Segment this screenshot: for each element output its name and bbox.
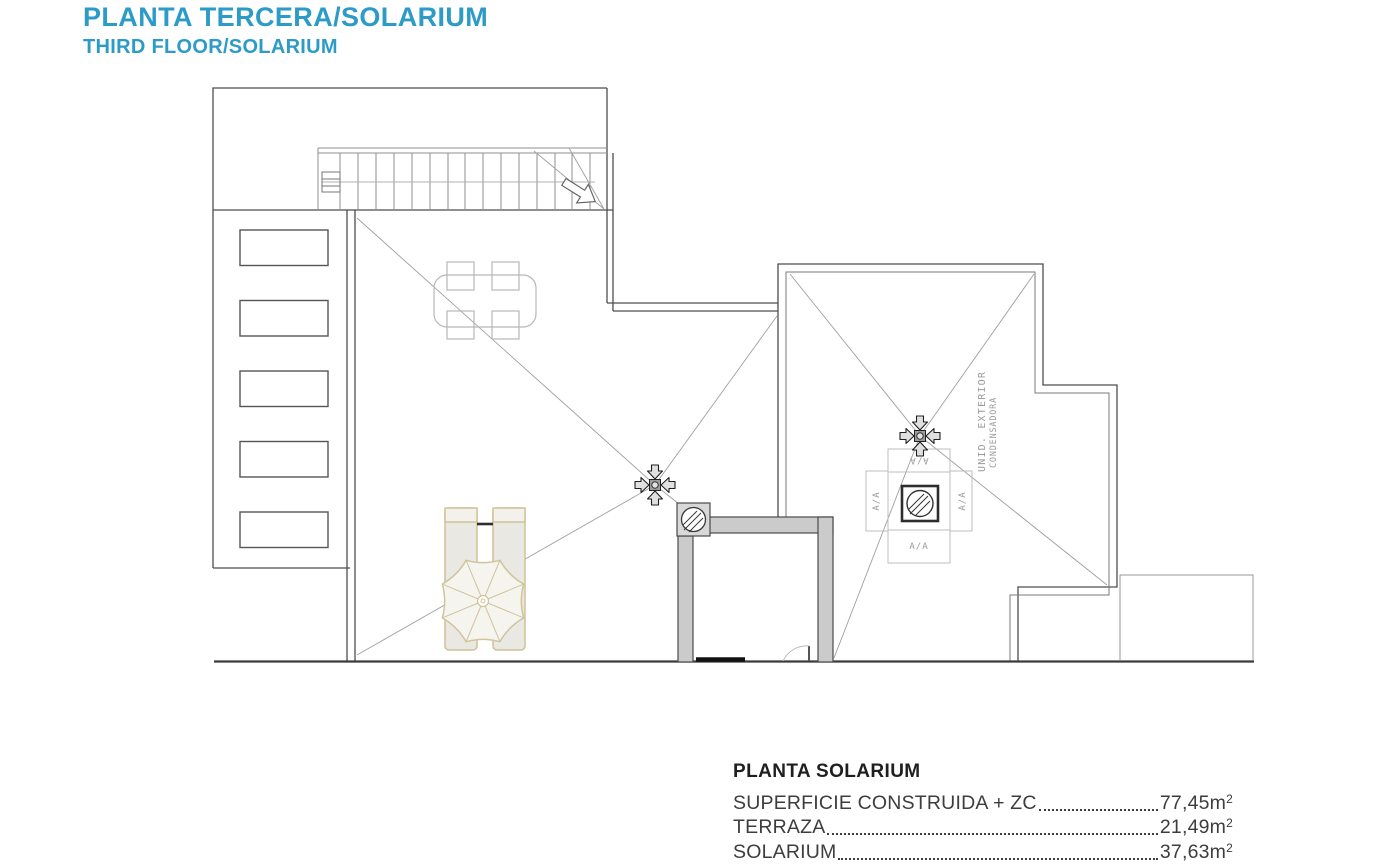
ac-label-left: A/A [872,491,882,510]
staircase [318,148,608,211]
area-table-heading: PLANTA SOLARIUM [733,761,1233,783]
area-table: PLANTA SOLARIUM SUPERFICIE CONSTRUIDA + … [733,761,1233,864]
area-row-value: 21,49m2 [1160,816,1233,839]
area-row-label: SOLARIUM [733,841,836,864]
roof-drain-terrace [635,465,675,505]
door-swing-arc [783,646,809,661]
louver-slat [240,371,328,407]
louver-slat [240,442,328,478]
ac-label-right: A/A [958,491,968,510]
louver-slat [240,230,328,266]
area-row-label: SUPERFICIE CONSTRUIDA + ZC [733,792,1037,815]
chair [492,311,519,339]
dot-leader [1039,809,1158,811]
chair [447,311,474,339]
area-row: TERRAZA 21,49m2 [733,815,1233,840]
ac-condenser-unit: A/A A/A A/A A/A UNID. EXTERIOR CONDENSAD… [866,371,999,563]
area-row-value: 77,45m2 [1160,792,1233,815]
dot-leader [838,858,1157,860]
dot-leader [827,833,1157,835]
condenser-label-line2: CONDENSADORA [989,397,999,468]
louver-slat [240,512,328,548]
area-row-value: 37,63m2 [1160,841,1233,864]
roof-drain-solarium [900,416,940,456]
louver-slat [240,301,328,337]
stair-shaft [677,503,833,662]
lower-roof-outline [1120,575,1253,660]
condenser-label-line1: UNID. EXTERIOR [977,371,988,472]
ac-label-bottom: A/A [909,542,928,552]
floor-plan-svg: A/A A/A A/A A/A UNID. EXTERIOR CONDENSAD… [0,0,1390,840]
area-row: SOLARIUM 37,63m2 [733,839,1233,864]
area-row: SUPERFICIE CONSTRUIDA + ZC 77,45m2 [733,790,1233,815]
chair [447,262,474,290]
chair [492,262,519,290]
area-row-label: TERRAZA [733,816,825,839]
left-block-louvers [240,230,328,548]
